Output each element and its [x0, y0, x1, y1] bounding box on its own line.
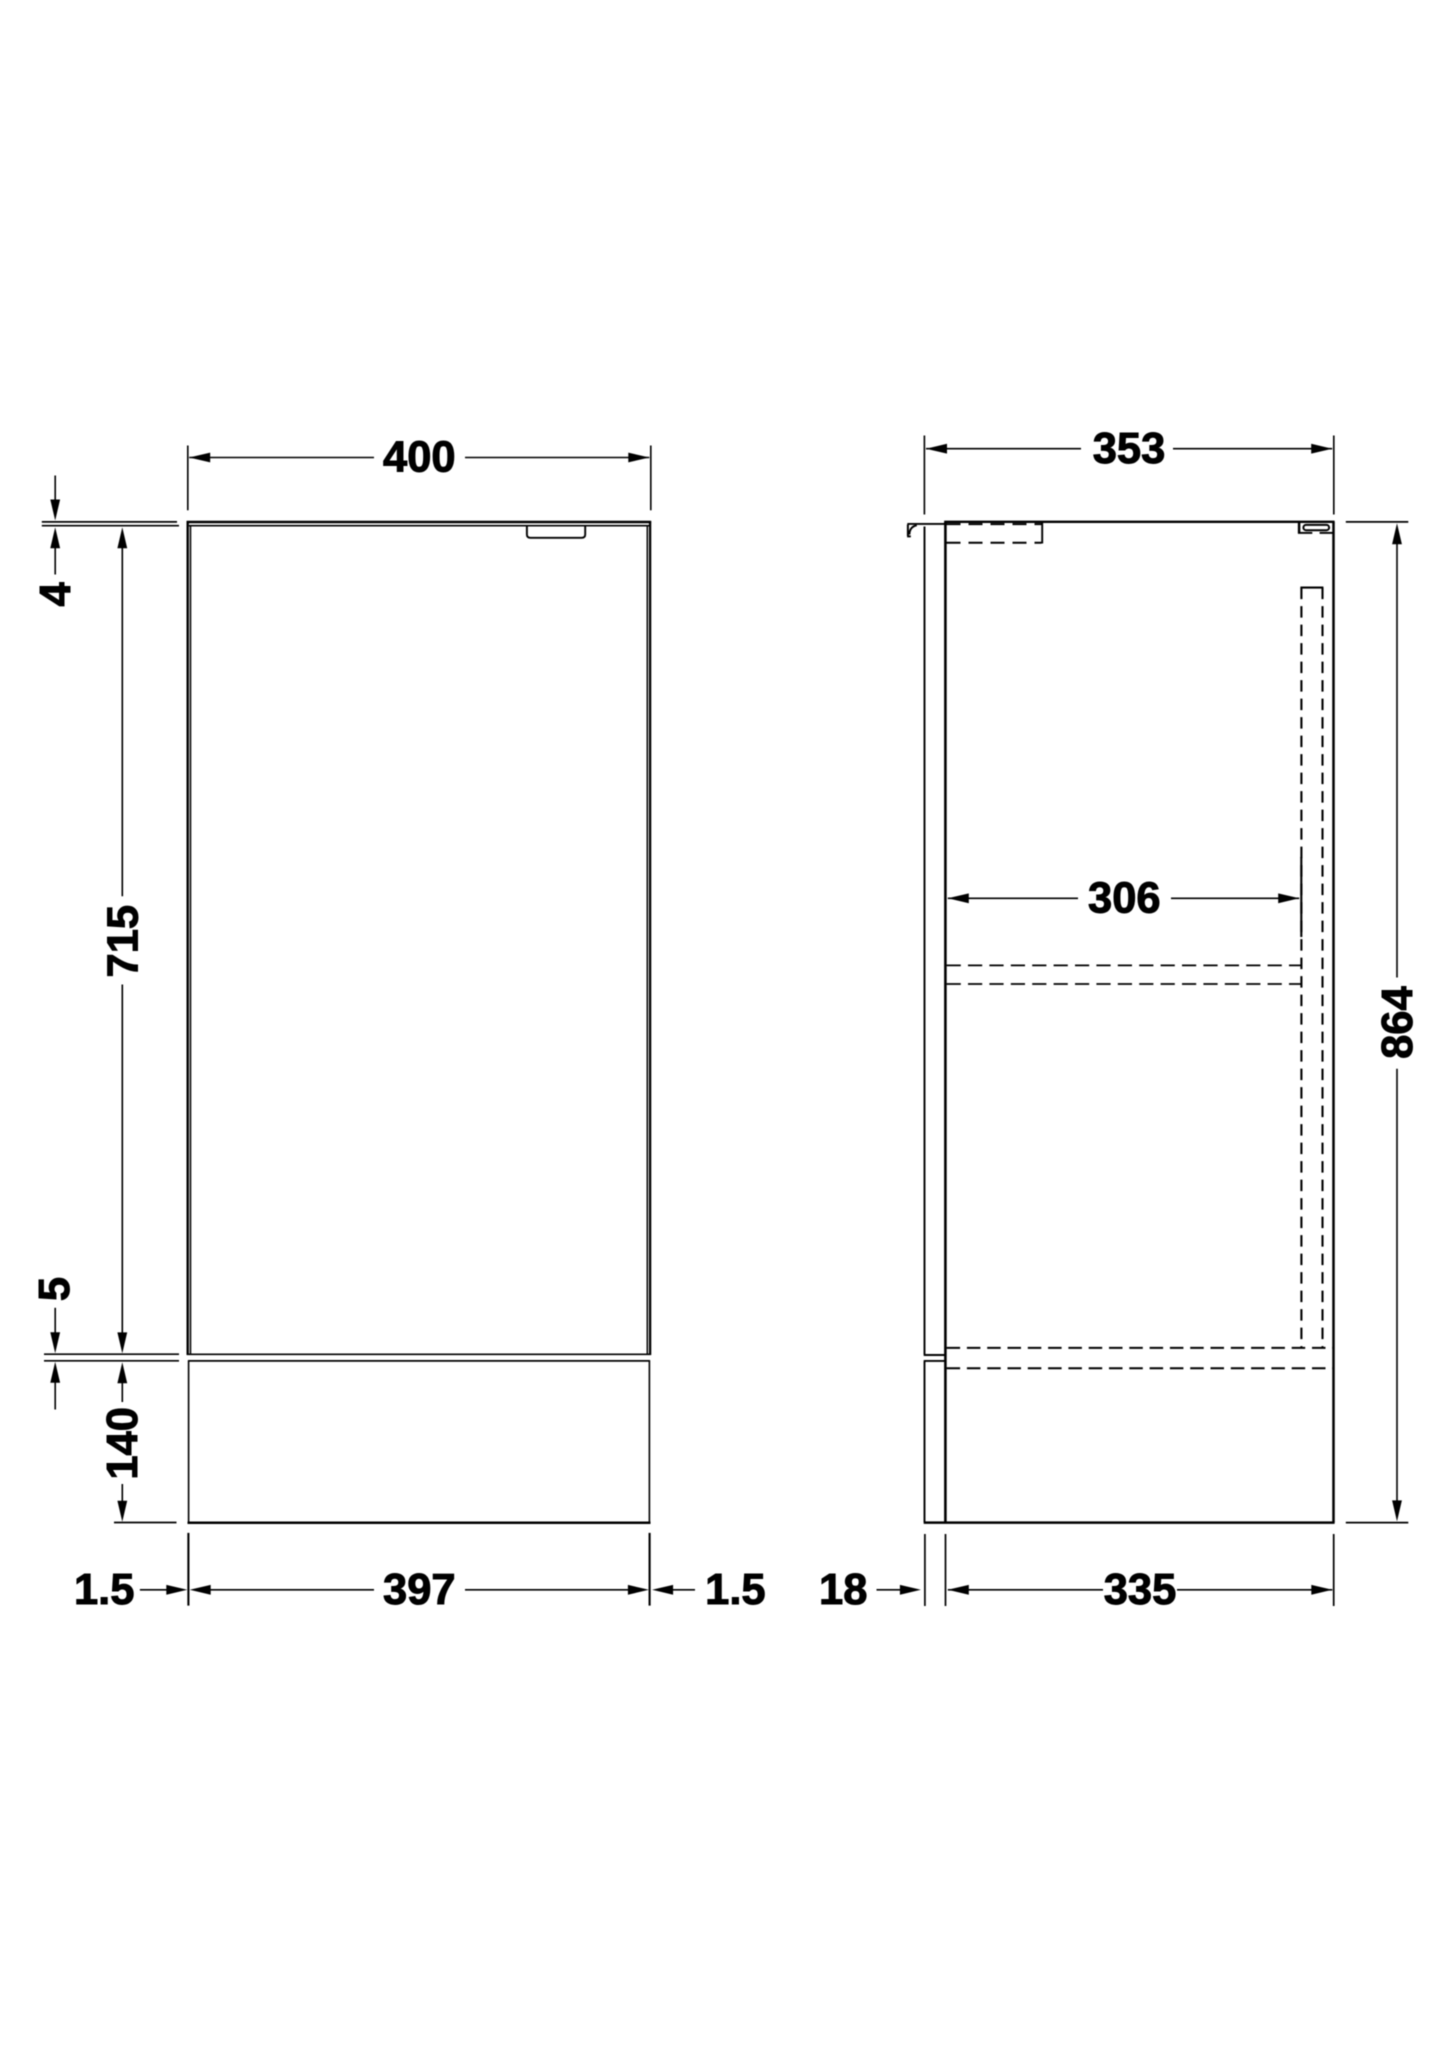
svg-text:18: 18: [819, 1566, 867, 1614]
svg-text:715: 715: [100, 905, 148, 978]
svg-text:4: 4: [32, 582, 80, 606]
svg-text:397: 397: [383, 1566, 456, 1614]
svg-text:335: 335: [1104, 1566, 1177, 1614]
svg-text:140: 140: [99, 1407, 147, 1480]
svg-text:306: 306: [1088, 875, 1161, 923]
svg-text:5: 5: [31, 1277, 79, 1301]
svg-text:353: 353: [1093, 425, 1166, 473]
svg-text:400: 400: [383, 434, 456, 482]
svg-text:864: 864: [1374, 986, 1422, 1059]
svg-text:1.5: 1.5: [74, 1566, 134, 1614]
svg-text:1.5: 1.5: [705, 1566, 765, 1614]
